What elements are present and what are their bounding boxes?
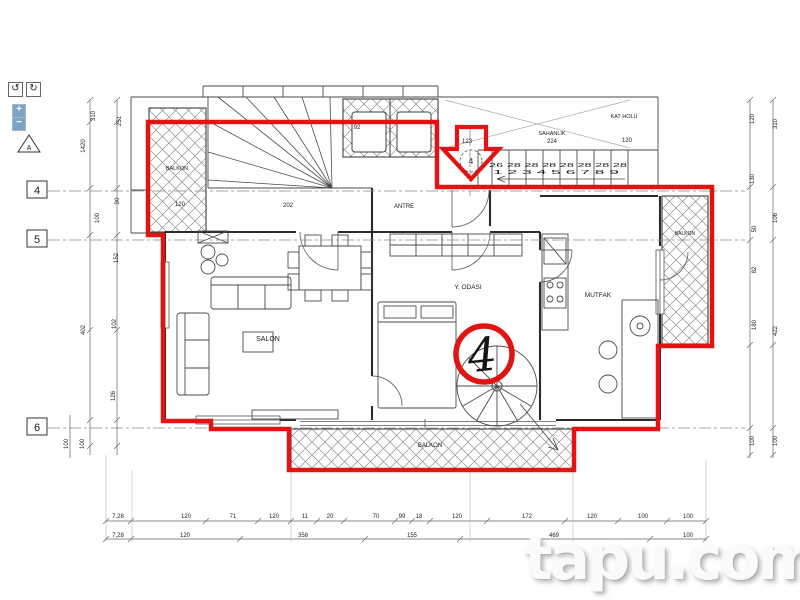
dims-left: 310 251 1420 100 90 152 402 102 126 100 …	[64, 110, 123, 449]
dim: 120	[269, 514, 280, 520]
dim: 100	[95, 212, 101, 223]
shaft-width-dim: 92	[354, 125, 361, 131]
dim: 251	[117, 115, 123, 126]
grid-column-number: 4	[469, 157, 474, 166]
section-marker: A	[27, 145, 32, 152]
grid-bubble-4: 4	[34, 185, 40, 197]
room-label-salon: SALON	[256, 336, 280, 343]
room-label-floor-hall: KAT HOLÜ	[611, 113, 638, 120]
balcony-width-dim: 120	[175, 202, 186, 208]
dim: 11	[302, 514, 309, 520]
furniture	[177, 231, 658, 419]
dim: 126	[111, 390, 117, 401]
dim: 90	[115, 197, 121, 204]
rotate-right-button[interactable]: ↻	[26, 82, 41, 97]
entrance-arrow	[443, 127, 499, 179]
dim: 120	[181, 514, 192, 520]
room-label-kitchen: MUTFAK	[585, 292, 612, 299]
stair-tread-widths: 26 28 28 28 28 28 28 28	[489, 163, 628, 169]
dim: 155	[407, 533, 418, 539]
dim: 100	[750, 435, 756, 446]
unit-walls	[165, 188, 660, 428]
stair-width-dim: 202	[283, 203, 294, 209]
dim: 310	[91, 110, 97, 121]
room-label-entry: ANTRE	[394, 204, 414, 210]
grid-bubble-6: 6	[34, 422, 40, 434]
dim: 120	[452, 514, 463, 520]
dim: 100	[638, 514, 649, 520]
room-label-landing: SAHANLIK	[538, 131, 566, 137]
dim: 100	[80, 438, 86, 449]
dim: 120	[180, 533, 191, 539]
dim: 82	[752, 266, 758, 273]
dim: 310	[773, 118, 779, 129]
dim: 50	[752, 225, 758, 232]
dim: 100	[773, 435, 779, 446]
floor-plan: 4 5 6 A SALON Y. ODASI MUTFAK ANTRE BALK…	[0, 0, 800, 600]
dim: 152	[114, 252, 120, 263]
dim: 18	[416, 514, 423, 520]
dim: 70	[373, 514, 380, 520]
grid-bubbles	[18, 135, 47, 435]
zoom-in-button[interactable]: +	[12, 104, 26, 118]
dim: 106	[773, 212, 779, 223]
room-label-balcony-right: BALKON	[675, 231, 696, 237]
room-labels: SALON Y. ODASI MUTFAK ANTRE BALKON BALKO…	[166, 113, 696, 449]
dim: 7,28	[112, 514, 124, 520]
dim: 20	[327, 514, 334, 520]
unit-number: 4	[464, 327, 500, 384]
dim: 172	[522, 514, 533, 520]
dim: 100	[683, 514, 694, 520]
dim: 99	[399, 514, 406, 520]
dim: 130	[750, 173, 756, 184]
room-label-balcony-left: BALKON	[166, 166, 188, 172]
room-label-balcony-bottom: BALKON	[418, 443, 442, 449]
balcony-hatch-areas	[149, 99, 708, 469]
dim: 358	[298, 533, 309, 539]
stair-tread-numbers: 1 2 3 4 5 6 7 8 9	[493, 170, 620, 176]
zoom-out-button[interactable]: −	[12, 117, 26, 131]
grid-bubble-5: 5	[34, 234, 40, 246]
dim: 102	[112, 318, 118, 329]
dim: 180	[752, 319, 758, 330]
dim: 120	[587, 514, 598, 520]
dim: 7,28	[112, 533, 124, 539]
dim: 402	[81, 324, 87, 335]
floor-plan-viewer: ↺ ↻ + −	[0, 0, 800, 600]
hall-width-dim: 120	[622, 138, 633, 144]
dim: 422	[773, 325, 779, 336]
watermark: tapu.com	[524, 524, 800, 594]
room-label-bedroom: Y. ODASI	[454, 284, 482, 291]
dims-bottom-row1: 7,28 120 71 120 11 20 70 99 18 120 172 1…	[112, 514, 694, 520]
rotate-left-button[interactable]: ↺	[8, 82, 23, 97]
dim: 100	[64, 438, 70, 449]
dims-right: 120 310 130 106 50 82 180 422 100 100	[750, 113, 779, 446]
dim: 1420	[81, 139, 87, 153]
entrance-width-dim: 123	[462, 139, 473, 145]
dim: 71	[230, 514, 237, 520]
landing-area: 224	[547, 139, 558, 145]
dim: 120	[750, 113, 756, 124]
